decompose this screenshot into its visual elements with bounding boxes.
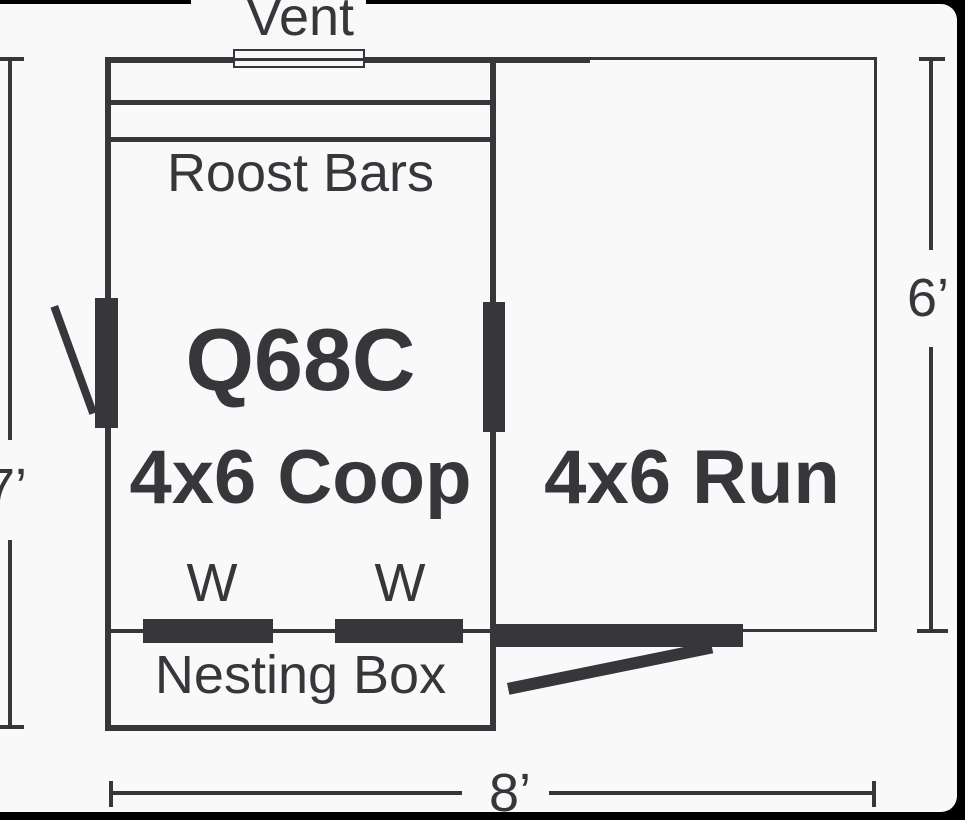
left-dimension-tick-bottom bbox=[0, 725, 24, 729]
window-label-left: W bbox=[172, 556, 252, 610]
coop-size-label: 4x6 Coop bbox=[105, 440, 496, 516]
vent-opening-mid-line bbox=[235, 58, 363, 61]
left-dimension-tick-top bbox=[0, 57, 24, 61]
roost-bar-line-2 bbox=[108, 137, 493, 142]
floor-plan-diagram: 7’ 6’ 8’ Vent W W Roost Bars Q68C 4x6 Co… bbox=[0, 0, 965, 820]
run-wall-outline bbox=[493, 57, 877, 632]
window-bar-right bbox=[335, 619, 463, 643]
vent-opening bbox=[233, 49, 365, 68]
window-label-right: W bbox=[360, 556, 440, 610]
run-size-label: 4x6 Run bbox=[497, 440, 887, 516]
coop-model-label: Q68C bbox=[105, 316, 496, 404]
right-dimension-line-lower bbox=[929, 347, 933, 632]
roost-bars-label: Roost Bars bbox=[105, 146, 496, 200]
vent-label: Vent bbox=[180, 0, 420, 44]
right-dimension-tick-top bbox=[919, 57, 945, 61]
bottom-dimension-tick-left bbox=[109, 781, 113, 807]
run-top-wall-thick-segment bbox=[490, 57, 590, 63]
bottom-dimension-line-right bbox=[549, 791, 874, 795]
right-dimension-line-upper bbox=[929, 60, 933, 250]
right-dimension-tick-bottom bbox=[917, 629, 948, 633]
bottom-dimension-line-left bbox=[112, 791, 462, 795]
window-bar-left bbox=[143, 619, 273, 643]
roost-bar-line-1 bbox=[108, 100, 493, 105]
left-dimension-line-lower bbox=[8, 540, 12, 728]
nesting-box-label: Nesting Box bbox=[105, 648, 496, 702]
coop-height-dimension-label: 7’ bbox=[0, 461, 42, 515]
run-height-dimension-label: 6’ bbox=[892, 271, 964, 325]
bottom-dimension-tick-right bbox=[872, 781, 876, 807]
total-width-dimension-label: 8’ bbox=[474, 766, 546, 820]
left-dimension-line-upper bbox=[8, 60, 12, 440]
